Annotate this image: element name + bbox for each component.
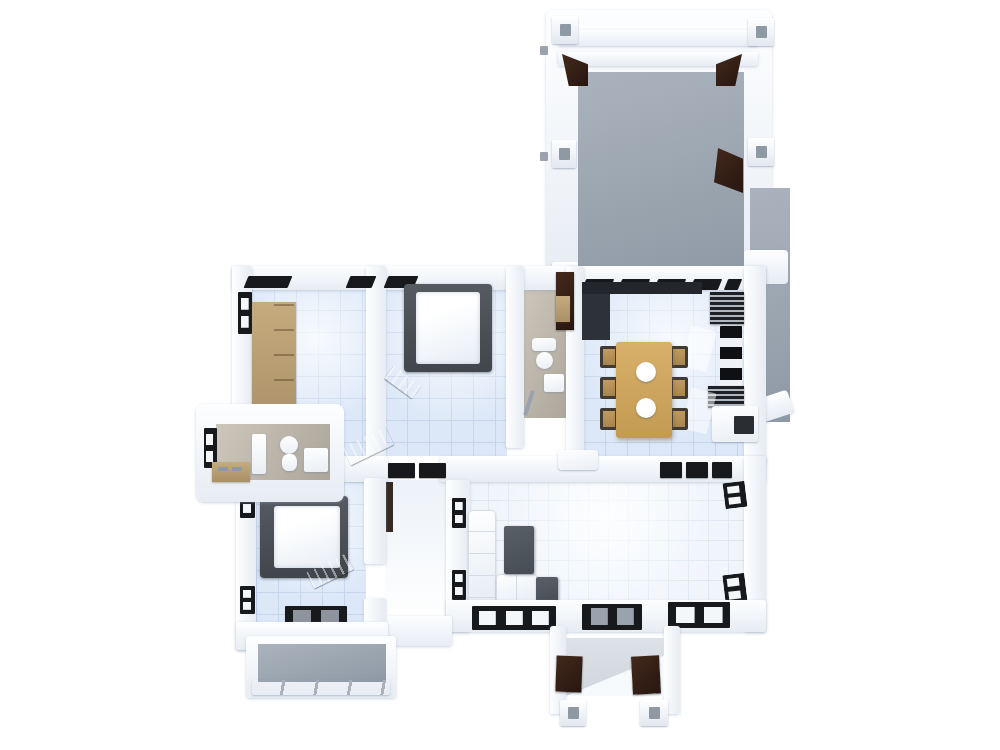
garage-wall-fitting-mid	[540, 152, 548, 161]
bathroom-wood-counter	[212, 462, 250, 482]
column-core	[756, 26, 767, 38]
threshold-mat	[712, 462, 732, 478]
column-core	[560, 24, 571, 36]
bathroom-partition	[252, 434, 266, 474]
bedroom1-left-window	[238, 292, 252, 334]
faucet	[232, 467, 242, 471]
plate	[636, 362, 656, 382]
hallway-mat	[419, 463, 446, 478]
porch-column-right	[640, 700, 668, 726]
column-core	[568, 707, 579, 719]
balcony-railing	[252, 680, 390, 695]
bedroom3-window	[240, 586, 255, 614]
bed-lower-mattress	[274, 506, 340, 568]
plate	[636, 398, 656, 418]
bedroom3-right-wall-upper	[364, 478, 386, 564]
coffee-table	[504, 526, 534, 574]
porch-bench-right	[631, 655, 661, 694]
garage-column-cap-tr	[748, 18, 774, 46]
floor-plan-render: 3D rendered top-down floor plan of a fur…	[0, 0, 1000, 750]
toilet-bowl	[536, 352, 553, 369]
column-core	[559, 148, 570, 160]
kitchen-rack	[720, 326, 742, 386]
dining-white-cabinet	[712, 406, 758, 442]
living-left-window	[452, 570, 466, 600]
kitchen-counter-side	[582, 294, 610, 340]
garage-beam-top	[558, 30, 758, 46]
garage-column-cap-ml	[552, 140, 576, 168]
living-corner-window	[722, 481, 747, 509]
wall-bench	[558, 450, 598, 470]
window-header	[346, 276, 377, 288]
door-leaf	[385, 482, 393, 532]
toilet-bowl	[282, 454, 297, 471]
balcony-floor	[258, 644, 386, 682]
bathroom-sink	[544, 374, 564, 392]
garage-wall-fitting-top	[540, 46, 548, 55]
bed-upper-mattress	[416, 292, 480, 364]
threshold-mat	[686, 462, 708, 478]
garage-column-cap-tl	[552, 16, 578, 44]
porch-bench-left	[555, 656, 582, 693]
wall-bedroom2-bathroom	[506, 266, 524, 448]
dining-chair	[670, 346, 688, 368]
bathroom-middle-shelf	[556, 296, 570, 322]
porch-column-left	[560, 700, 586, 726]
dining-table	[616, 342, 672, 438]
bottom-window-right	[668, 602, 730, 628]
faucet	[218, 467, 228, 471]
hallway-mat	[388, 463, 415, 478]
sofa-long-section	[468, 510, 496, 604]
toilet-tank	[532, 338, 556, 351]
column-core	[649, 707, 660, 719]
kitchen-shelf-upper	[710, 292, 744, 324]
column-core	[756, 146, 767, 158]
dining-chair	[670, 377, 688, 399]
kitchen-counter-top	[582, 282, 702, 294]
cabinet-opening	[734, 416, 754, 434]
toilet-tank	[280, 436, 298, 454]
threshold-mat	[660, 462, 682, 478]
living-left-window	[452, 498, 466, 528]
bottom-window-left	[472, 606, 556, 630]
window-header	[244, 276, 293, 288]
bathroom-tub	[304, 448, 328, 472]
hallway-floor	[385, 480, 447, 620]
garage-column-cap-mr	[748, 138, 774, 166]
bottom-window-center	[582, 604, 642, 630]
dining-chair	[670, 408, 688, 430]
